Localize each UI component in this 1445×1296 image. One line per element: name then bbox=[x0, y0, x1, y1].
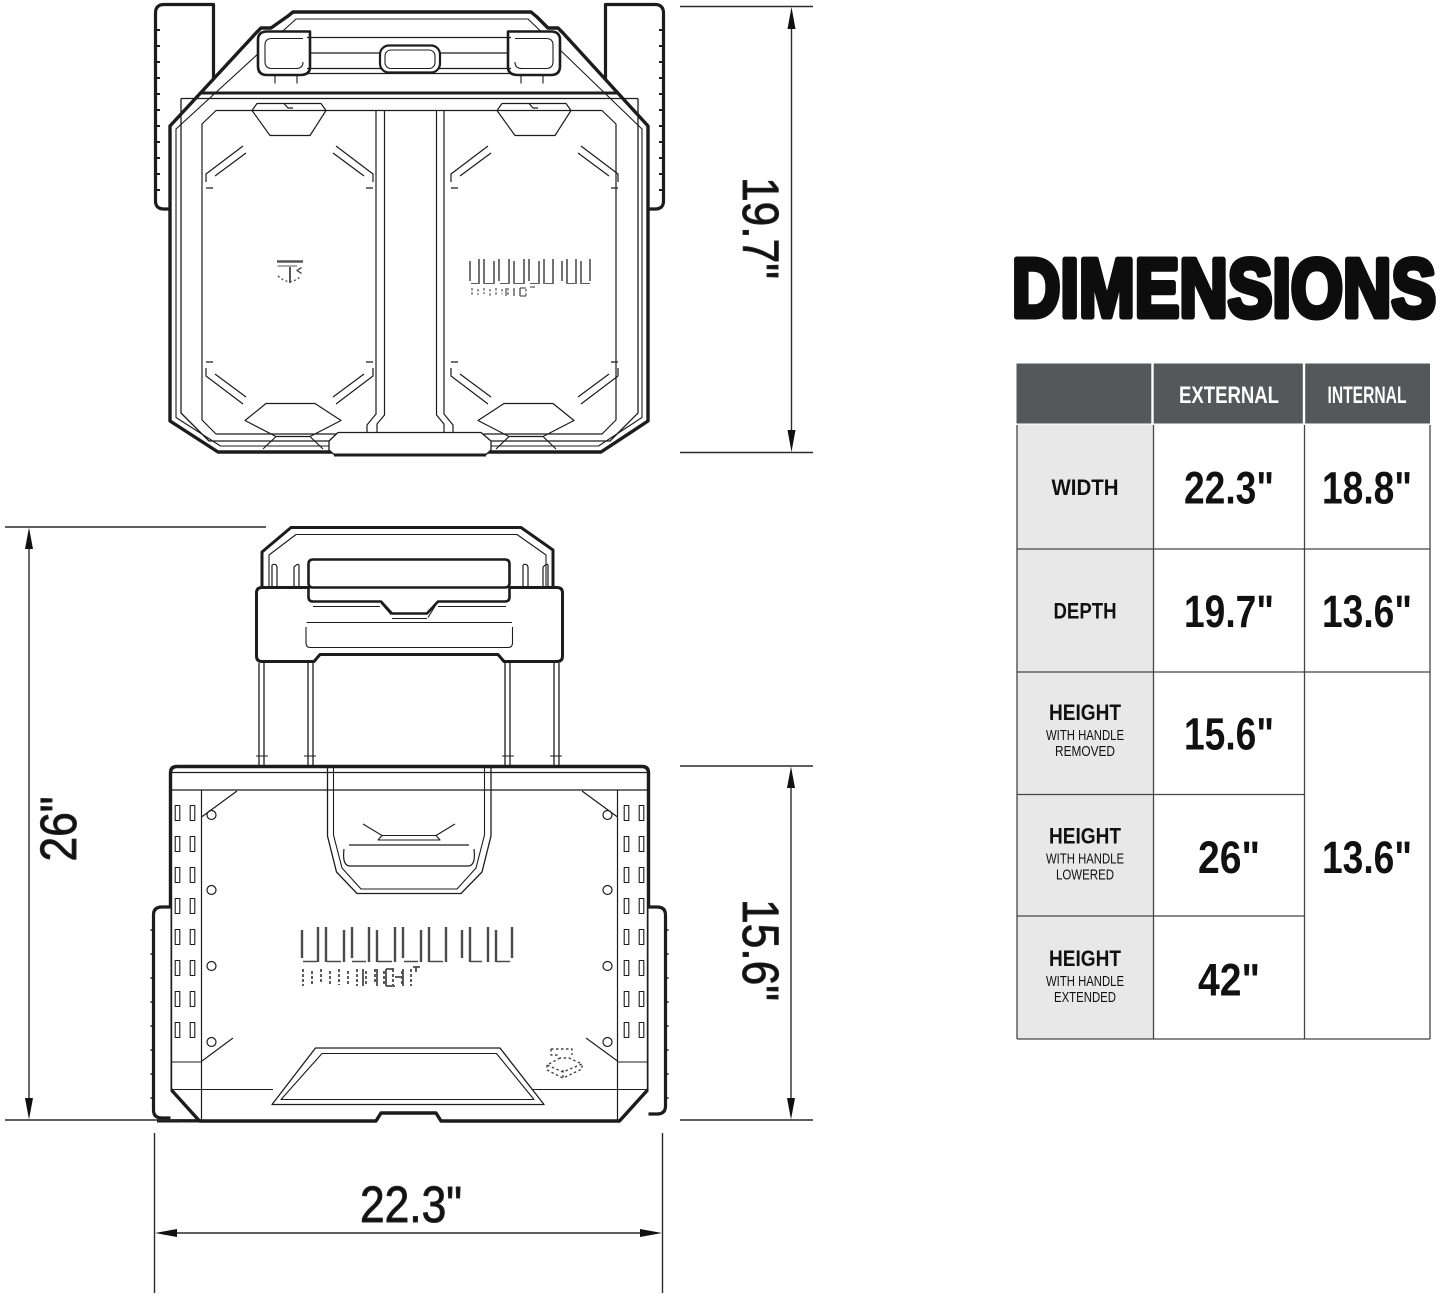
svg-text:19.7": 19.7" bbox=[1184, 586, 1274, 637]
svg-text:INTERNAL: INTERNAL bbox=[1328, 382, 1407, 409]
svg-text:22.3": 22.3" bbox=[1184, 463, 1274, 514]
svg-text:13.6": 13.6" bbox=[1322, 586, 1412, 637]
svg-text:EXTENDED: EXTENDED bbox=[1054, 989, 1116, 1006]
svg-text:18.8": 18.8" bbox=[1322, 463, 1412, 514]
svg-text:19.7": 19.7" bbox=[731, 177, 788, 279]
svg-text:DIMENSIONS: DIMENSIONS bbox=[1012, 243, 1436, 335]
svg-text:DEPTH: DEPTH bbox=[1054, 599, 1117, 624]
svg-text:HEIGHT: HEIGHT bbox=[1049, 700, 1121, 725]
svg-text:WITH HANDLE: WITH HANDLE bbox=[1046, 851, 1124, 868]
svg-text:13.6": 13.6" bbox=[1322, 832, 1412, 883]
svg-text:WITH HANDLE: WITH HANDLE bbox=[1046, 727, 1124, 744]
svg-text:LOWERED: LOWERED bbox=[1056, 867, 1114, 884]
svg-text:EXTERNAL: EXTERNAL bbox=[1179, 382, 1279, 409]
svg-text:HEIGHT: HEIGHT bbox=[1049, 824, 1121, 849]
svg-text:22.3": 22.3" bbox=[360, 1177, 462, 1234]
svg-text:15.6": 15.6" bbox=[1184, 709, 1274, 760]
svg-text:26": 26" bbox=[1198, 832, 1260, 883]
svg-text:HEIGHT: HEIGHT bbox=[1049, 946, 1121, 971]
svg-text:REMOVED: REMOVED bbox=[1055, 743, 1115, 760]
svg-text:15.6": 15.6" bbox=[731, 899, 788, 1001]
svg-text:42": 42" bbox=[1198, 955, 1260, 1006]
svg-text:WIDTH: WIDTH bbox=[1052, 475, 1119, 500]
svg-text:26": 26" bbox=[31, 796, 88, 861]
svg-text:WITH HANDLE: WITH HANDLE bbox=[1046, 973, 1124, 990]
